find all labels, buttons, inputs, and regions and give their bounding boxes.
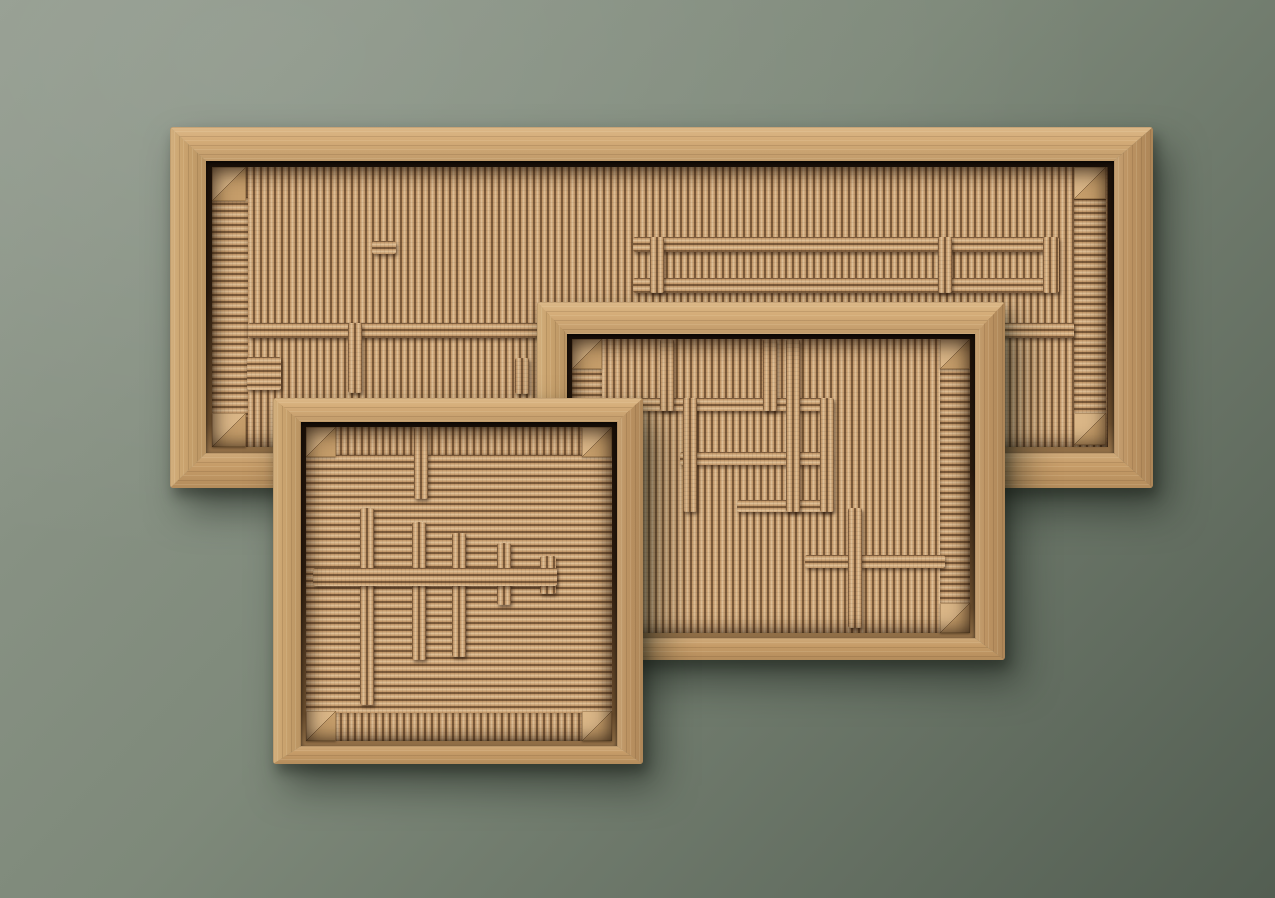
cord-tie-horizontal [680, 452, 831, 465]
frame-rail-left [273, 398, 301, 764]
selvage-wrap-0 [334, 427, 584, 455]
frame-rail-top [537, 302, 1005, 334]
cord-tie-vertical [763, 339, 777, 411]
corner-block [212, 413, 246, 447]
small-square-weaving-panel [273, 398, 643, 764]
cord-tie-vertical [414, 427, 428, 499]
corner-block [212, 167, 246, 201]
corner-block [940, 339, 970, 369]
cord-tie-vertical [660, 339, 674, 411]
cord-tie-vertical [786, 339, 800, 512]
cord-tie-vertical [1043, 237, 1059, 293]
corner-block [306, 711, 336, 741]
cord-tie-vertical [683, 398, 697, 512]
corner-block [1074, 167, 1106, 199]
cord-tie-vertical [360, 508, 374, 705]
frame-rail-left [170, 127, 206, 488]
cord-tie-horizontal [247, 357, 281, 390]
cord-tie-horizontal [737, 500, 831, 512]
corner-block [582, 427, 612, 457]
frame-rail-top [273, 398, 643, 422]
corner-block [1074, 413, 1106, 445]
cord-tie-horizontal [805, 555, 945, 568]
corner-block [572, 339, 602, 369]
wall-background [0, 0, 1275, 898]
frame-rail-bottom [273, 746, 643, 764]
cord-tie-horizontal [372, 241, 396, 254]
corner-block [582, 711, 612, 741]
cord-tie-vertical [848, 508, 862, 628]
selvage-wrap-1 [334, 713, 584, 741]
corner-block [306, 427, 336, 457]
cord-tie-vertical [348, 323, 362, 393]
cord-tie-vertical [938, 237, 952, 293]
selvage-wrap-0 [212, 197, 248, 417]
cord-tie-vertical [515, 358, 529, 394]
frame-rail-right [617, 398, 643, 764]
frame-rail-right [975, 302, 1005, 660]
corner-block [940, 603, 970, 633]
selvage-wrap-1 [1074, 199, 1106, 415]
cord-tie-horizontal [633, 278, 1045, 293]
cord-tie-vertical [650, 237, 664, 293]
cord-tie-horizontal [313, 568, 557, 586]
cord-tie-horizontal [633, 237, 1045, 252]
cord-tie-vertical [820, 398, 834, 512]
small-square-weaving-cord-field [306, 427, 612, 741]
frame-rail-right [1114, 127, 1153, 488]
selvage-wrap-1 [940, 367, 970, 605]
cord-tie-vertical [452, 533, 466, 657]
frame-rail-top [170, 127, 1153, 161]
cord-tie-vertical [412, 522, 426, 660]
